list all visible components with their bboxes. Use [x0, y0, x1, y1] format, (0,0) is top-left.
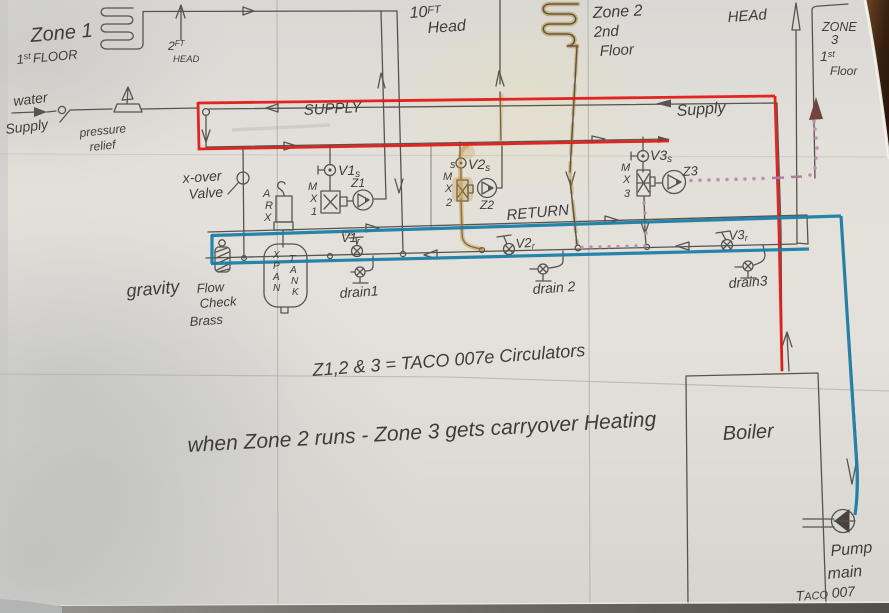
svg-text:Zone 2: Zone 2 [591, 2, 643, 22]
svg-text:drain1: drain1 [339, 282, 379, 301]
svg-text:M: M [621, 162, 631, 174]
svg-text:Brass: Brass [189, 312, 224, 329]
svg-text:R: R [265, 200, 273, 212]
svg-text:Floor: Floor [830, 64, 858, 78]
svg-text:A: A [262, 188, 270, 200]
svg-text:Check: Check [199, 293, 238, 311]
svg-text:3: 3 [831, 32, 839, 47]
svg-text:A: A [272, 272, 280, 283]
svg-text:T: T [289, 254, 296, 265]
svg-text:Floor: Floor [599, 41, 635, 60]
svg-text:HEAd: HEAd [727, 6, 768, 26]
svg-text:2: 2 [445, 197, 452, 209]
svg-text:Head: Head [427, 17, 467, 37]
svg-text:ZONE: ZONE [821, 20, 857, 34]
svg-text:N: N [291, 276, 299, 287]
svg-text:Supply: Supply [676, 100, 727, 120]
svg-text:Flow: Flow [196, 279, 226, 296]
svg-text:N: N [273, 283, 281, 294]
svg-text:relief: relief [89, 137, 118, 154]
svg-text:Z1: Z1 [350, 176, 365, 190]
svg-text:2nd: 2nd [592, 23, 620, 41]
svg-text:1: 1 [311, 206, 317, 218]
svg-text:Z3: Z3 [681, 163, 699, 179]
svg-text:drain 2: drain 2 [532, 278, 576, 297]
svg-text:M: M [308, 181, 318, 193]
svg-text:HEAD: HEAD [173, 54, 200, 65]
svg-text:SUPPLY: SUPPLY [303, 99, 363, 119]
svg-text:main: main [827, 563, 863, 583]
svg-text:X: X [263, 212, 272, 224]
svg-text:X: X [622, 174, 631, 186]
svg-text:Valve: Valve [188, 184, 224, 202]
svg-text:P: P [273, 261, 280, 272]
svg-text:s: s [450, 159, 456, 171]
svg-text:Boiler: Boiler [722, 420, 776, 445]
svg-text:X: X [309, 193, 318, 205]
svg-text:A: A [289, 265, 297, 276]
svg-text:X: X [444, 183, 453, 195]
svg-text:Z2: Z2 [479, 198, 494, 212]
svg-text:Pump: Pump [830, 539, 873, 560]
svg-text:M: M [443, 171, 453, 183]
svg-text:X: X [272, 250, 280, 261]
svg-text:3: 3 [624, 188, 631, 200]
svg-text:drain3: drain3 [728, 272, 768, 291]
